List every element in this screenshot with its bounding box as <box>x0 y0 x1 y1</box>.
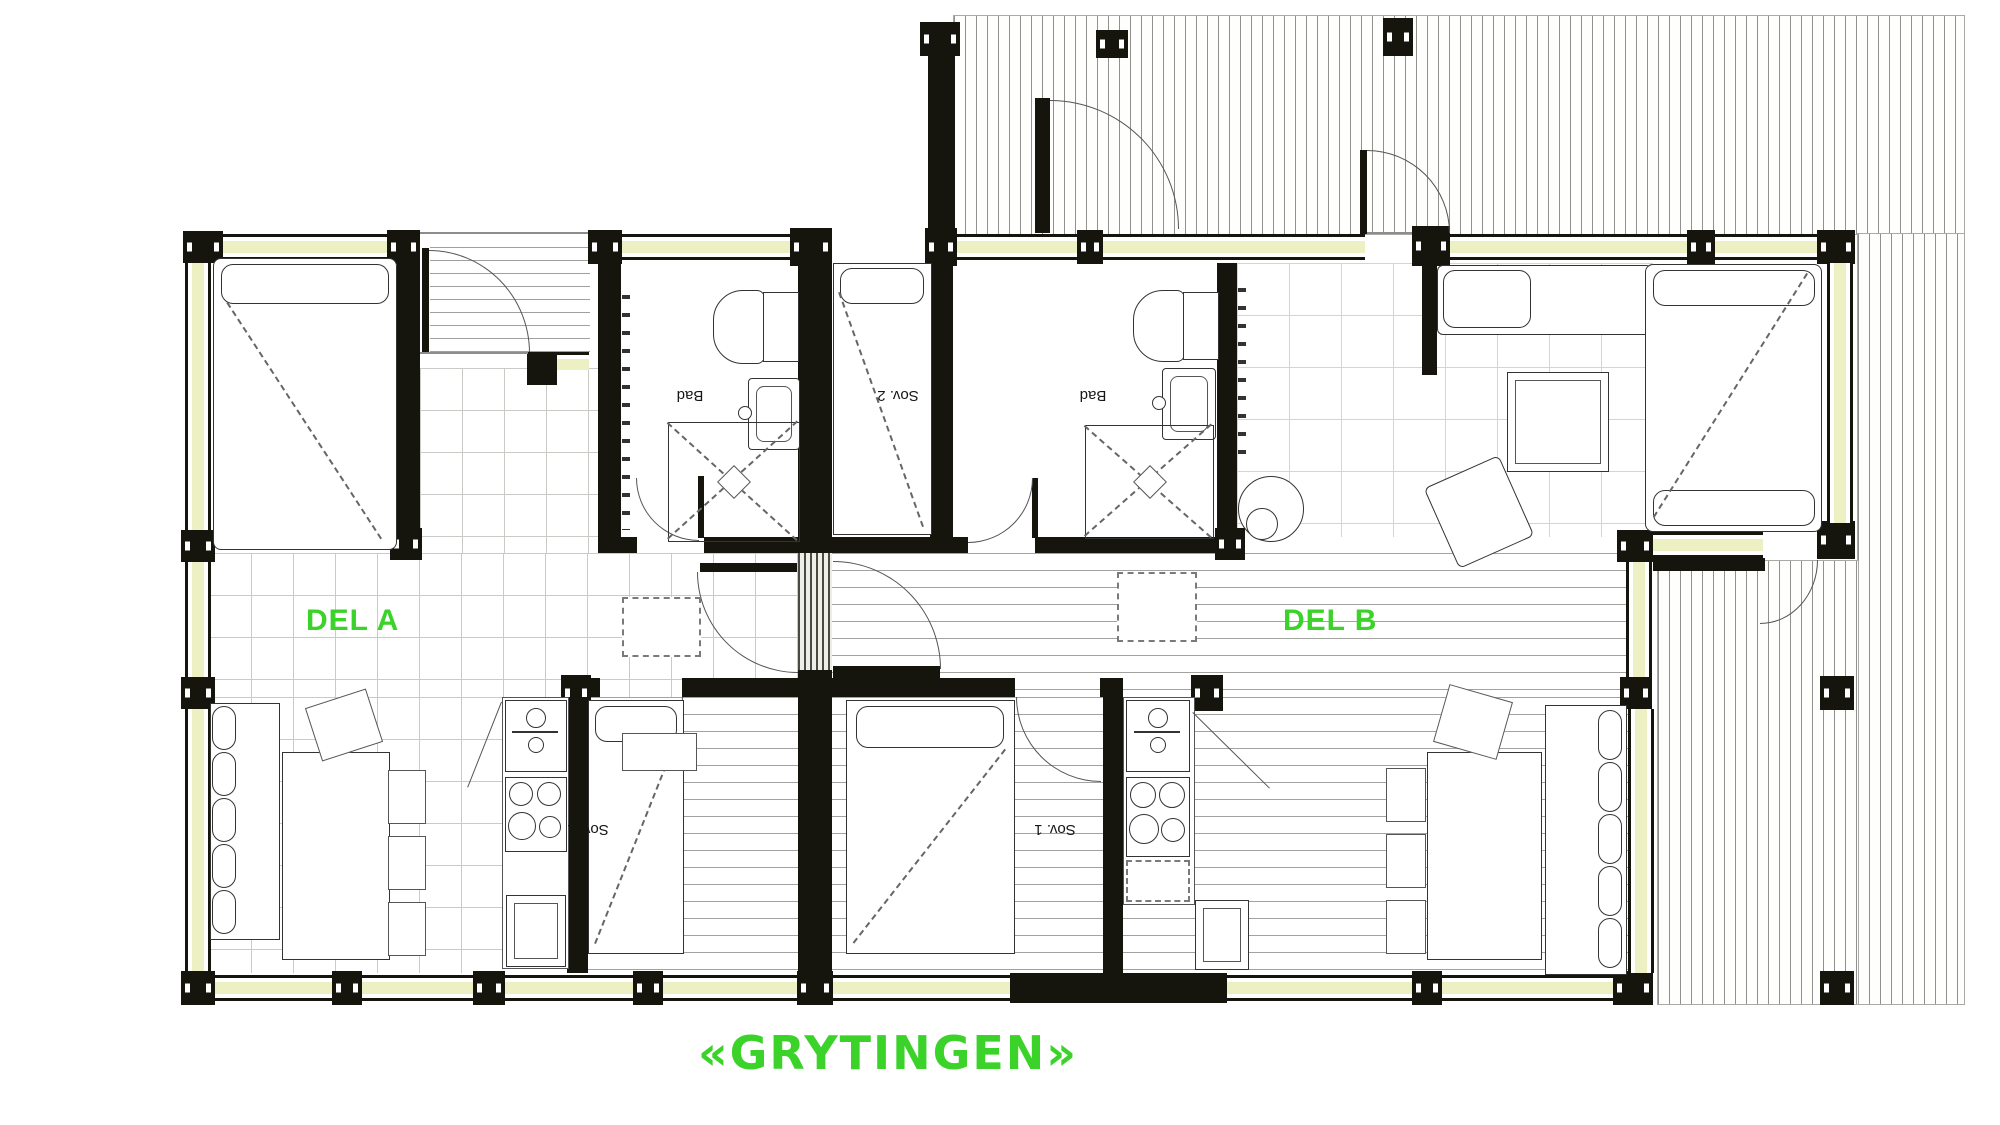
unit-a-label: DEL A <box>306 604 399 638</box>
room-label-sov1-b: Sov. 1 <box>1015 816 1095 844</box>
door-leaf <box>1360 150 1367 234</box>
door-leaf <box>1032 478 1038 538</box>
chair <box>1386 900 1426 954</box>
room-label-text: Bad <box>1080 388 1107 405</box>
window <box>833 975 1010 1001</box>
room-label-text: Sov. 2 <box>877 388 918 405</box>
hall-b-floor <box>832 553 1637 697</box>
wall-segment <box>598 263 621 553</box>
column <box>1077 230 1103 264</box>
window <box>1100 234 1365 260</box>
column <box>1613 971 1653 1005</box>
column <box>1687 230 1715 264</box>
wall-segment <box>1100 678 1123 697</box>
column <box>797 971 833 1005</box>
room-label-text: Bad <box>677 388 704 405</box>
step-line <box>420 352 528 354</box>
room-label-sov2: Sov. 2 <box>858 382 938 410</box>
bed-pillow <box>221 264 389 304</box>
column <box>1617 530 1653 562</box>
deck-post <box>1096 30 1128 58</box>
burner <box>1161 818 1185 842</box>
party-wall-hatched <box>798 553 832 670</box>
window <box>185 263 211 530</box>
toilet-tank <box>1183 292 1219 360</box>
faucet <box>738 406 752 420</box>
burner <box>1129 814 1159 844</box>
window <box>185 709 211 973</box>
door-leaf <box>700 563 797 572</box>
plan-title: «GRYTINGEN» <box>638 1026 1138 1080</box>
sofa-cushion <box>1598 814 1622 864</box>
toilet-bowl <box>713 290 765 364</box>
faucet <box>1152 396 1166 410</box>
sofa-cushion <box>212 844 236 888</box>
burner <box>1130 782 1156 808</box>
room-label-text: Sov. 1 <box>1034 822 1075 839</box>
wall-segment <box>682 678 800 697</box>
room-label-bad-a: Bad <box>655 382 725 410</box>
bed-pillow <box>1443 270 1531 328</box>
window <box>1442 975 1613 1001</box>
kitchen-sink <box>528 737 544 753</box>
window <box>1827 263 1853 523</box>
deck-right-strip <box>1857 233 1965 1005</box>
column <box>925 228 957 266</box>
burner <box>508 812 536 840</box>
column <box>181 971 215 1005</box>
sofa-cushion <box>212 798 236 842</box>
kitchen-sink <box>1150 737 1166 753</box>
chair <box>388 770 426 824</box>
deck-post <box>920 22 960 56</box>
burner <box>537 782 561 806</box>
wall-segment <box>527 352 557 385</box>
kitchen-cabinet-inner <box>514 903 558 959</box>
column <box>790 228 832 266</box>
window <box>557 352 589 370</box>
wall-segment <box>1035 537 1217 553</box>
door-threshold <box>418 232 588 234</box>
deck-post <box>1820 971 1854 1005</box>
window <box>1653 532 1763 558</box>
bathroom-hooks <box>1238 288 1246 468</box>
wall-segment <box>1010 973 1227 1003</box>
bed-pillow <box>856 706 1004 748</box>
wall-segment <box>1653 558 1765 571</box>
window <box>1227 975 1412 1001</box>
sink-basin <box>1170 376 1208 432</box>
window <box>1628 709 1654 973</box>
chair <box>1386 834 1426 888</box>
sofa-cushion <box>1598 762 1622 812</box>
kitchen-sink <box>526 708 546 728</box>
dining-table <box>1427 752 1542 960</box>
window <box>620 234 790 260</box>
chair <box>388 902 426 956</box>
bathroom-hooks <box>622 295 630 530</box>
chair <box>388 836 426 890</box>
unit-b-label: DEL B <box>1283 604 1377 638</box>
kitchen-dashed-unit <box>1126 860 1190 902</box>
wall-segment <box>1422 263 1437 375</box>
sofa-cushion <box>1598 710 1622 760</box>
coffee-table-inner <box>1515 380 1601 464</box>
kitchen-sink-divider <box>1134 731 1180 733</box>
sofa-cushion <box>1598 866 1622 916</box>
room-label-bad-b: Bad <box>1058 382 1128 410</box>
column <box>332 971 362 1005</box>
dining-table <box>282 752 390 960</box>
window <box>215 975 332 1001</box>
stool <box>1246 508 1278 540</box>
burner <box>1159 782 1185 808</box>
column <box>473 971 505 1005</box>
column <box>181 530 215 562</box>
floor-plan: Bad Sov. 2 Bad Sov. 1 Sov. 1 DEL A DEL B… <box>0 0 2000 1125</box>
window <box>955 234 1077 260</box>
window <box>1448 234 1687 260</box>
wall-segment <box>1217 263 1237 553</box>
party-wall <box>798 263 832 553</box>
bed-pillow <box>840 268 924 304</box>
window <box>185 562 211 677</box>
wall-segment <box>1103 697 1123 973</box>
toilet-bowl <box>1133 290 1185 362</box>
column <box>1817 521 1855 559</box>
party-wall <box>798 670 832 973</box>
window <box>1626 562 1652 677</box>
window <box>663 975 800 1001</box>
wall-segment <box>397 263 420 530</box>
column <box>1817 230 1855 264</box>
wall-segment <box>621 537 637 553</box>
wardrobe-dashed <box>1117 572 1197 642</box>
deck-lower-right <box>1657 560 1859 1005</box>
column <box>633 971 663 1005</box>
sofa-cushion <box>212 890 236 934</box>
window <box>223 234 387 260</box>
sofa-cushion <box>212 706 236 750</box>
deck-screen-wall-2 <box>1035 98 1050 233</box>
wall-segment <box>832 537 930 553</box>
toilet-tank <box>763 292 799 362</box>
kitchen-cabinet-inner <box>1203 908 1241 962</box>
wall-segment <box>832 678 1015 697</box>
hall-a-floor <box>420 368 598 553</box>
burner <box>509 782 533 806</box>
sofa-cushion <box>1598 918 1622 968</box>
chair <box>1386 768 1426 822</box>
wall-segment <box>953 537 968 553</box>
room-label-text: Sov. 1 <box>567 822 608 839</box>
deck-post <box>1820 676 1854 710</box>
column <box>1191 675 1223 711</box>
wardrobe-dashed <box>622 597 701 657</box>
window <box>505 975 633 1001</box>
kitchen-sink-divider <box>512 731 558 733</box>
bed-pillow <box>1653 490 1815 526</box>
window <box>362 975 473 1001</box>
room-label-sov1-a: Sov. 1 <box>548 816 628 844</box>
deck-post <box>1383 18 1413 56</box>
kitchen-sink <box>1148 708 1168 728</box>
window <box>1713 234 1817 260</box>
bench <box>622 733 697 771</box>
column <box>1412 971 1442 1005</box>
column <box>1215 528 1245 560</box>
door-leaf <box>422 248 429 354</box>
column <box>588 230 622 264</box>
sofa-cushion <box>212 752 236 796</box>
